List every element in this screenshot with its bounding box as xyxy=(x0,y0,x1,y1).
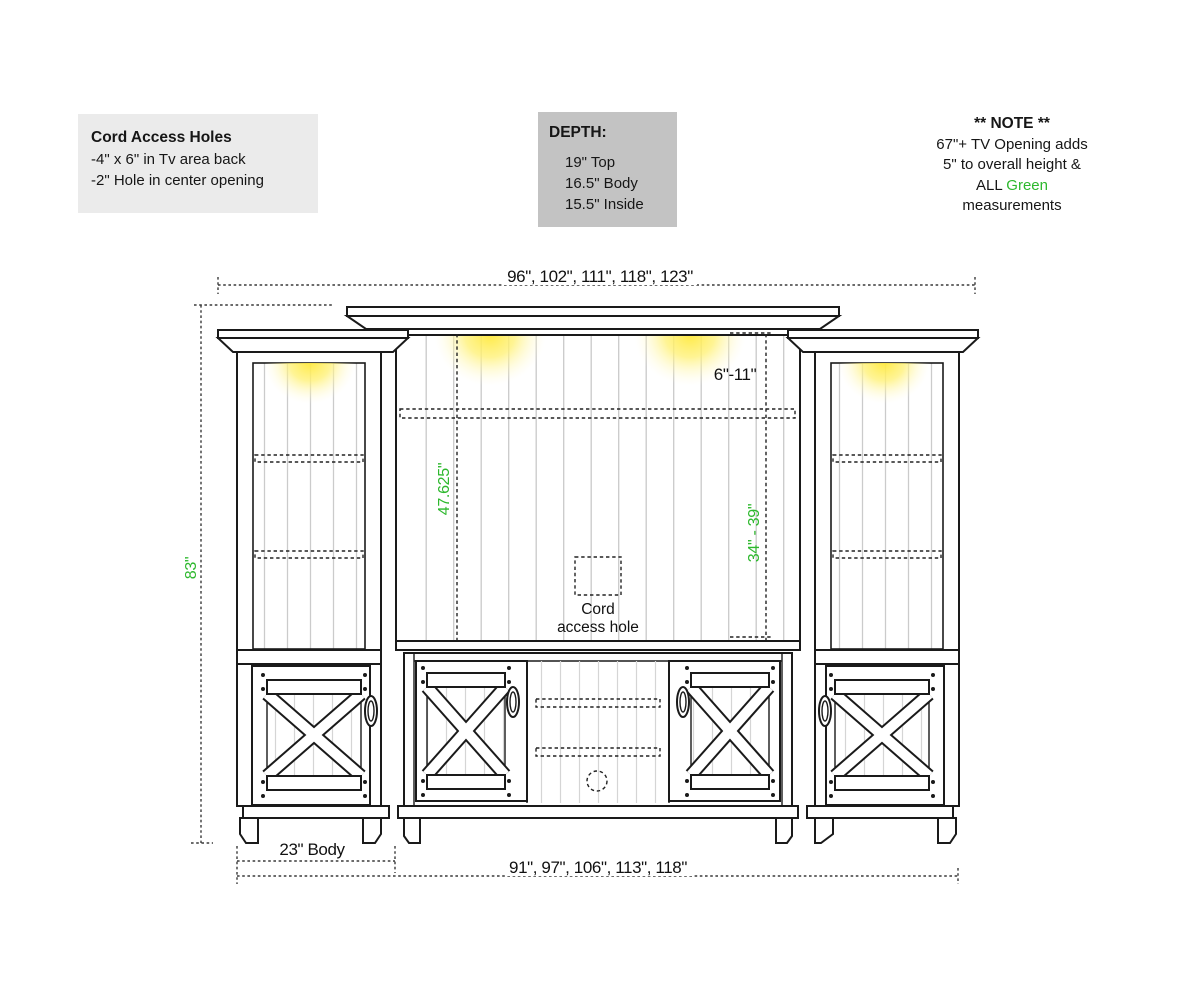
top-gap-label: 6"-11" xyxy=(714,365,757,384)
left-tower-outer-leg xyxy=(240,818,258,843)
cord-hole-label-1: Cord xyxy=(581,601,615,618)
bottom-width-dimension: 91", 97", 106", 113", 118" xyxy=(237,858,958,884)
left-tower-inner-leg xyxy=(363,818,381,843)
right-tower-base-rail xyxy=(807,806,953,818)
top-widths-label: 96", 102", 111", 118", 123" xyxy=(507,267,693,286)
center-base-rail xyxy=(398,806,798,818)
depth-title: DEPTH: xyxy=(549,122,677,143)
note-block: ** NOTE ** 67"+ TV Opening adds 5" to ov… xyxy=(912,114,1112,217)
left-tower-crown xyxy=(218,338,408,352)
right-tower-crown-top xyxy=(788,330,978,338)
note-all-text: ALL xyxy=(976,177,1002,194)
center-crown-top xyxy=(347,307,839,316)
tv-opening-height-label: 47.625" xyxy=(436,463,453,516)
right-tower xyxy=(788,320,978,843)
right-tower-inner-leg xyxy=(815,818,833,843)
body-width-dimension: 23" Body xyxy=(237,840,395,884)
furniture-spec-sheet: 96", 102", 111", 118", 123" 83" xyxy=(0,0,1200,1000)
center-crown xyxy=(347,316,839,329)
cord-access-line: -2" Hole in center opening xyxy=(91,170,318,191)
right-tower-crown xyxy=(788,338,978,352)
note-green-text: Green xyxy=(1006,177,1048,194)
center-right-door xyxy=(669,661,780,801)
note-line: ALL Green xyxy=(912,176,1112,197)
center-right-leg xyxy=(776,818,792,843)
left-tower-crown-top xyxy=(218,330,408,338)
depth-item: 15.5" Inside xyxy=(565,194,677,215)
left-tower-divider xyxy=(237,650,381,664)
right-tower-panel xyxy=(831,363,943,649)
note-line: 5" to overall height & xyxy=(912,155,1112,176)
left-tower-base-rail xyxy=(243,806,389,818)
center-left-leg xyxy=(404,818,420,843)
bottom-widths-label: 91", 97", 106", 113", 118" xyxy=(509,858,687,877)
depth-item: 16.5" Body xyxy=(565,173,677,194)
side-opening-height-label: 34" - 39" xyxy=(746,504,763,562)
right-tower-outer-leg xyxy=(938,818,956,843)
left-tower-panel xyxy=(253,363,365,649)
cord-access-holes-box: Cord Access Holes -4" x 6" in Tv area ba… xyxy=(78,114,318,213)
left-tower-door xyxy=(252,666,377,805)
center-base-cabinet xyxy=(398,653,798,843)
center-open-shelves xyxy=(527,661,669,803)
right-tower-divider xyxy=(815,650,959,664)
right-tower-door xyxy=(819,666,944,805)
note-line: 67"+ TV Opening adds xyxy=(912,135,1112,156)
center-section: 6"-11" 47.625" 34" - 39" Cord access hol… xyxy=(347,282,839,650)
top-width-dimension: 96", 102", 111", 118", 123" xyxy=(218,266,975,294)
cord-access-line: -4" x 6" in Tv area back xyxy=(91,149,318,170)
depth-box: DEPTH: 19" Top 16.5" Body 15.5" Inside xyxy=(538,112,677,227)
cord-hole-label-2: access hole xyxy=(557,619,639,636)
overall-height-label: 83" xyxy=(183,557,200,580)
cord-access-title: Cord Access Holes xyxy=(91,127,318,148)
body-width-label: 23" Body xyxy=(279,840,345,859)
note-line: measurements xyxy=(912,196,1112,217)
left-tower xyxy=(218,320,408,843)
depth-item: 19" Top xyxy=(565,152,677,173)
note-title: ** NOTE ** xyxy=(912,114,1112,135)
center-left-door xyxy=(416,661,527,801)
tv-shelf-board xyxy=(396,641,800,650)
